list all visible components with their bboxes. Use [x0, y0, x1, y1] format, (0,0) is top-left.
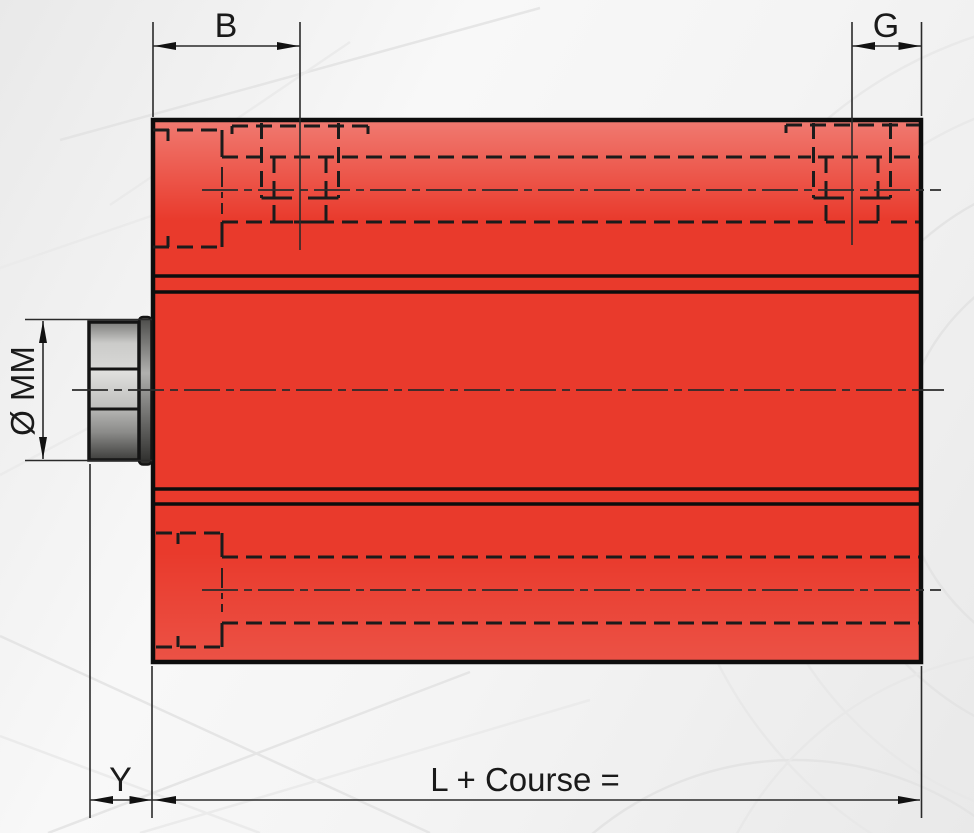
drawing-canvas: B G Ø MM Y L +	[0, 0, 974, 833]
dim-g-arrow-right	[899, 42, 921, 50]
rod-segment-middle	[89, 369, 139, 409]
rod-segment-top	[89, 322, 139, 369]
dim-y-label: Y	[109, 761, 132, 799]
cylinder-technical-drawing: B G Ø MM Y L +	[0, 0, 974, 833]
dim-b-arrow-left	[154, 42, 176, 50]
body-bottom-sheen	[155, 506, 919, 660]
rod-segment-bottom	[89, 409, 139, 460]
dim-l-arrow-right	[898, 796, 920, 804]
cylinder-body	[153, 120, 921, 662]
dim-g-label: G	[873, 7, 899, 45]
dim-g-arrow-left	[853, 42, 875, 50]
dim-dia-arrow-top	[39, 321, 47, 343]
dim-b-arrow-right	[277, 42, 299, 50]
dim-dia-label: Ø MM	[4, 346, 41, 436]
dim-dia-arrow-bottom	[39, 437, 47, 459]
dim-b-label: B	[215, 7, 238, 45]
dim-length-label: L + Course =	[430, 761, 620, 798]
